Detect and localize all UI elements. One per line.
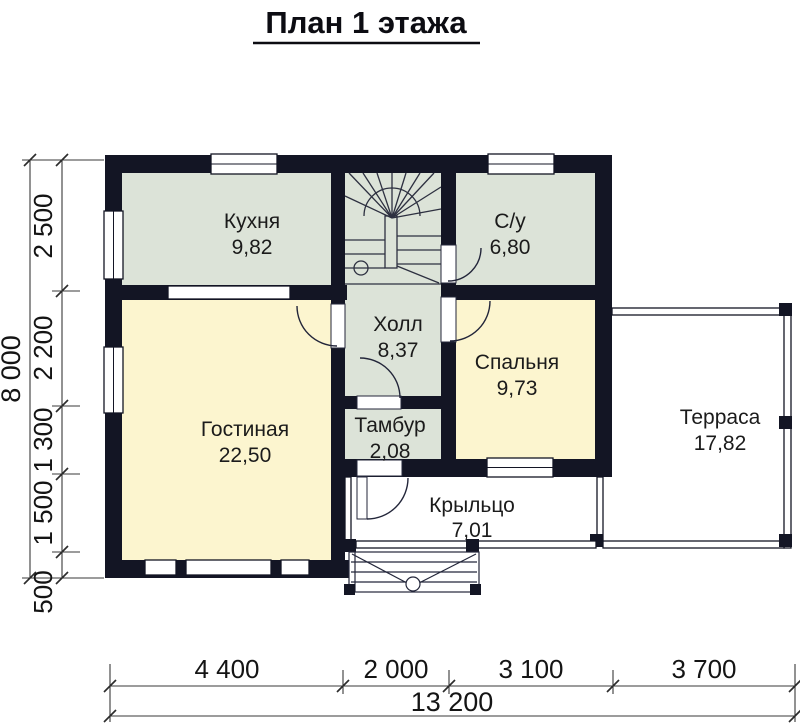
dim-bottom-seg-1: 2 000 (363, 654, 428, 684)
dim-bottom-seg-2: 3 100 (498, 654, 563, 684)
room-area-porch: 7,01 (452, 519, 493, 542)
room-area-tambour: 2,08 (370, 440, 411, 463)
porch-wall-left (345, 477, 351, 541)
room-area-kitchen: 9,82 (232, 236, 273, 259)
wall-hall-left (331, 155, 345, 578)
room-name-hall: Холл (373, 313, 423, 336)
steps-post (344, 584, 355, 595)
dim-left-seg-1: 2 200 (28, 315, 58, 380)
door-bathroom-leaf (441, 245, 456, 283)
dimensions-bottom: 4 400 2 000 3 100 3 700 13 200 (104, 654, 800, 722)
terrace-wall-left (597, 477, 603, 541)
steps-direction-marker (406, 577, 420, 591)
door-entrance-leaf (357, 477, 367, 519)
room-area-bathroom: 6,80 (490, 236, 531, 259)
door-bedroom-leaf (441, 297, 456, 342)
dim-left-seg-0: 2 500 (28, 193, 58, 258)
steps-post (470, 584, 481, 595)
room-name-bedroom: Спальня (475, 351, 559, 374)
room-area-bedroom: 9,73 (497, 377, 538, 400)
window-living-bottom-3 (281, 560, 309, 575)
dim-left-total: 8 000 (0, 335, 26, 403)
dimensions-left: 8 000 2 500 2 200 1 300 1 500 500 (0, 154, 104, 614)
room-name-bathroom: С/у (494, 210, 526, 233)
opening-kitchen-living (168, 286, 290, 299)
plan-title: План 1 этажа (253, 5, 480, 43)
window-living-bottom-2 (186, 560, 271, 575)
terrace-post (779, 303, 792, 316)
window-living-bottom-1 (145, 560, 176, 575)
room-area-living: 22,50 (219, 444, 272, 467)
terrace-post (599, 303, 612, 316)
porch-post (343, 539, 356, 552)
room-area-terrace: 17,82 (694, 432, 747, 455)
dim-bottom-seg-3: 3 700 (671, 654, 736, 684)
dim-bottom-seg-0: 4 400 (194, 654, 259, 684)
dim-left-seg-2: 1 300 (28, 407, 58, 472)
terrace-post (779, 534, 792, 547)
wall-bathroom-bedroom (441, 285, 612, 300)
room-area-hall: 8,37 (378, 339, 419, 362)
room-name-living: Гостиная (201, 418, 289, 441)
room-name-terrace: Терраса (680, 406, 761, 429)
terrace-post (779, 416, 792, 429)
dim-bottom-total: 13 200 (411, 687, 494, 717)
page-title: План 1 этажа (265, 5, 467, 40)
terrace-wall-top (612, 308, 784, 315)
floor-plan-page: План 1 этажа (0, 0, 800, 725)
room-name-tambour: Тамбур (354, 414, 425, 437)
dim-left-seg-3: 1 500 (28, 480, 58, 545)
terrace-wall-bottom (603, 541, 784, 548)
room-name-porch: Крыльцо (429, 494, 515, 517)
entrance-steps (344, 552, 481, 595)
room-name-kitchen: Кухня (224, 210, 280, 233)
dim-left-seg-4: 500 (28, 570, 58, 613)
door-tambour-leaf (357, 396, 401, 409)
floor-plan-drawing: План 1 этажа (0, 0, 800, 725)
door-living-leaf (331, 304, 345, 348)
